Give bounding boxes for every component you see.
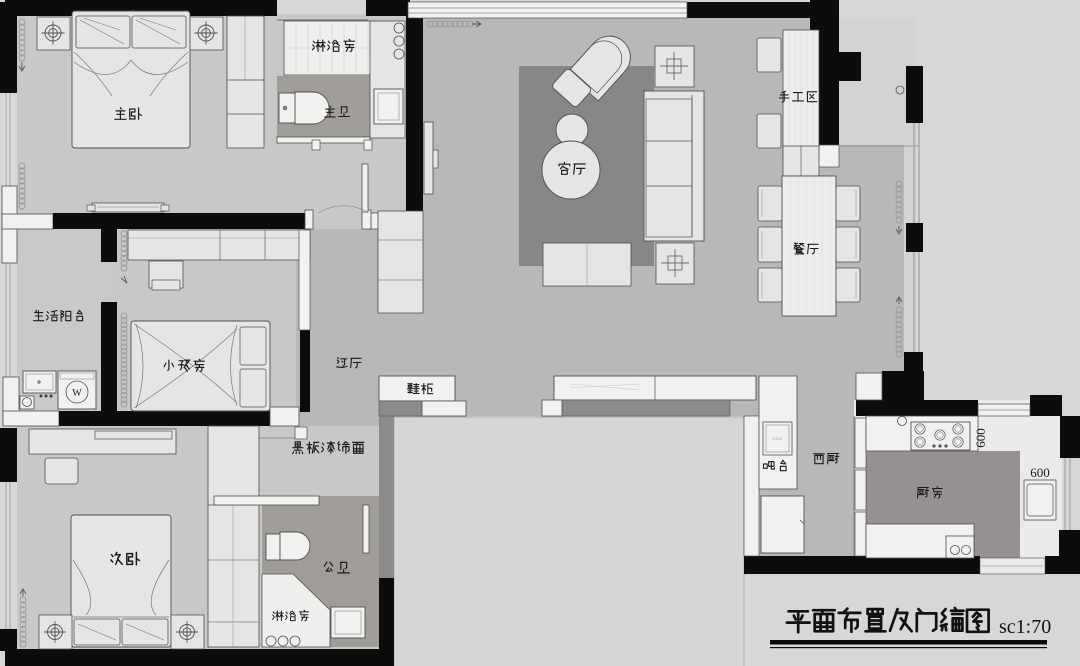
svg-text:W: W bbox=[72, 388, 82, 399]
svg-text:600: 600 bbox=[1030, 465, 1050, 480]
svg-text:sc1:70: sc1:70 bbox=[999, 616, 1051, 638]
svg-text:O134: O134 bbox=[772, 436, 783, 441]
svg-text:600: 600 bbox=[973, 428, 988, 448]
